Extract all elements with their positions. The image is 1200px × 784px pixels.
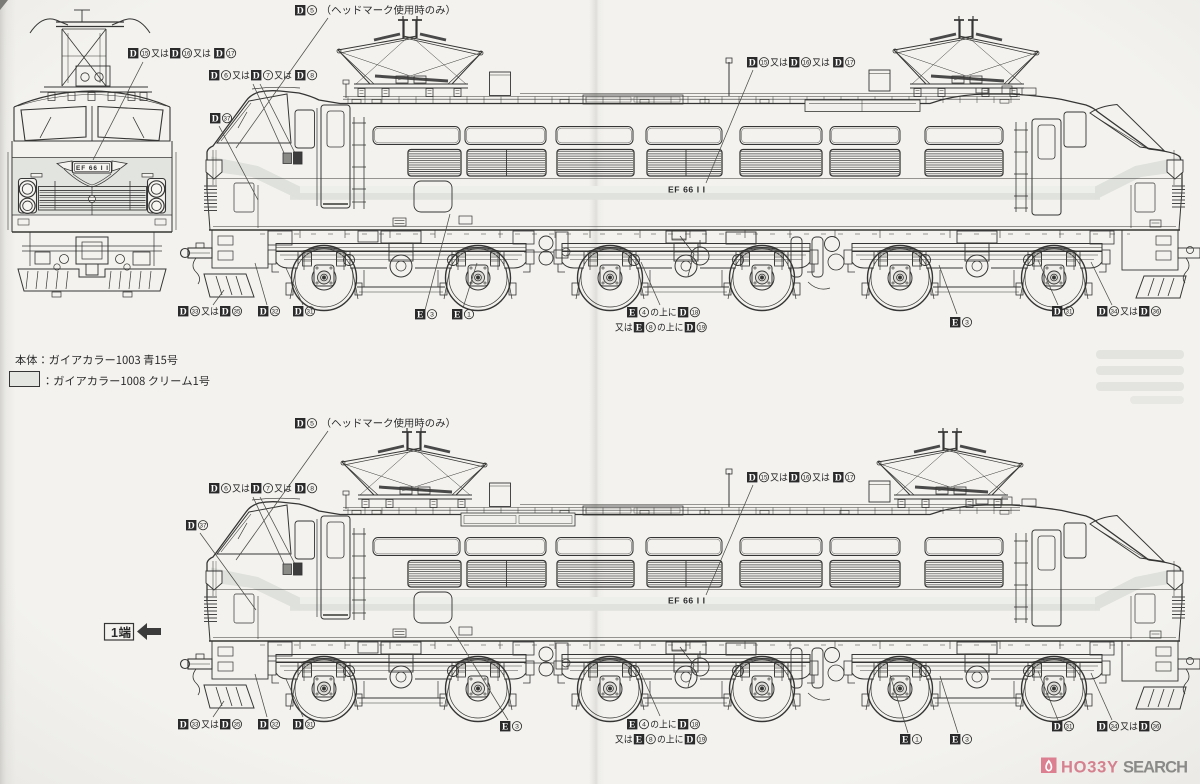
svg-text:D: D <box>680 719 687 730</box>
svg-text:31: 31 <box>307 308 314 315</box>
svg-text:16: 16 <box>184 50 191 57</box>
svg-text:32: 32 <box>272 721 279 728</box>
svg-text:D: D <box>1054 306 1061 317</box>
svg-text:D: D <box>835 57 842 68</box>
svg-text:3: 3 <box>430 312 434 319</box>
svg-text:D: D <box>297 70 304 81</box>
svg-text:E: E <box>629 719 635 730</box>
svg-text:33: 33 <box>192 308 199 315</box>
svg-text:18: 18 <box>691 721 698 728</box>
svg-text:16: 16 <box>803 474 810 481</box>
svg-text:D: D <box>297 418 304 429</box>
svg-text:D: D <box>297 5 304 16</box>
svg-text:3: 3 <box>965 320 969 327</box>
svg-text:D: D <box>253 70 260 81</box>
svg-text:31: 31 <box>1066 723 1073 730</box>
svg-text:D: D <box>835 472 842 483</box>
svg-text:19: 19 <box>698 324 705 331</box>
svg-text:D: D <box>1099 306 1106 317</box>
svg-text:E: E <box>629 307 635 318</box>
svg-text:D: D <box>791 57 798 68</box>
svg-text:E: E <box>454 309 460 320</box>
svg-text:34: 34 <box>1111 723 1118 730</box>
svg-text:D: D <box>222 719 229 730</box>
svg-text:37: 37 <box>200 522 207 529</box>
svg-text:D: D <box>216 48 223 59</box>
svg-text:4: 4 <box>642 722 646 729</box>
svg-text:37: 37 <box>224 115 231 122</box>
svg-text:D: D <box>1054 721 1061 732</box>
svg-text:SEARCH: SEARCH <box>1123 759 1188 777</box>
svg-text:E: E <box>636 322 642 333</box>
svg-text:33: 33 <box>192 721 199 728</box>
svg-text:5: 5 <box>310 8 314 15</box>
svg-text:D: D <box>686 322 693 333</box>
svg-text:8: 8 <box>649 325 653 332</box>
svg-text:HO33Y: HO33Y <box>1061 759 1118 777</box>
svg-text:D: D <box>130 48 137 59</box>
svg-text:34: 34 <box>1111 308 1118 315</box>
svg-text:D: D <box>260 719 267 730</box>
svg-text:15: 15 <box>761 59 768 66</box>
svg-text:D: D <box>212 113 219 124</box>
svg-text:7: 7 <box>266 73 270 80</box>
svg-text:D: D <box>188 520 195 531</box>
svg-text:36: 36 <box>1153 723 1160 730</box>
svg-text:6: 6 <box>224 73 228 80</box>
svg-text:3: 3 <box>965 737 969 744</box>
svg-text:D: D <box>680 307 687 318</box>
svg-text:1: 1 <box>467 312 471 319</box>
svg-text:32: 32 <box>272 308 279 315</box>
svg-text:5: 5 <box>310 421 314 428</box>
svg-text:1: 1 <box>111 626 118 640</box>
svg-text:8: 8 <box>310 486 314 493</box>
svg-text:D: D <box>1141 306 1148 317</box>
svg-text:D: D <box>1141 721 1148 732</box>
svg-text:17: 17 <box>847 474 854 481</box>
svg-text:6: 6 <box>224 486 228 493</box>
svg-text:D: D <box>1099 721 1106 732</box>
svg-text:D: D <box>749 472 756 483</box>
svg-text:D: D <box>295 719 302 730</box>
svg-text:4: 4 <box>642 310 646 317</box>
svg-text:D: D <box>253 483 260 494</box>
svg-text:3: 3 <box>515 724 519 731</box>
svg-text:16: 16 <box>803 59 810 66</box>
svg-text:E: E <box>902 734 908 745</box>
svg-text:D: D <box>791 472 798 483</box>
svg-text:D: D <box>260 306 267 317</box>
svg-text:15: 15 <box>761 474 768 481</box>
svg-text:8: 8 <box>310 73 314 80</box>
svg-text:36: 36 <box>1153 308 1160 315</box>
svg-text:15: 15 <box>142 50 149 57</box>
svg-text:19: 19 <box>698 736 705 743</box>
svg-text:E: E <box>417 309 423 320</box>
svg-text:17: 17 <box>847 59 854 66</box>
svg-text:EF 66 I I: EF 66 I I <box>76 165 108 172</box>
svg-text:D: D <box>172 48 179 59</box>
svg-text:D: D <box>297 483 304 494</box>
svg-text:35: 35 <box>234 308 241 315</box>
svg-text:1: 1 <box>915 737 919 744</box>
svg-text:D: D <box>180 719 187 730</box>
svg-text:E: E <box>636 734 642 745</box>
svg-text:18: 18 <box>691 309 698 316</box>
svg-text:7: 7 <box>266 486 270 493</box>
svg-text:35: 35 <box>234 721 241 728</box>
svg-text:31: 31 <box>1066 308 1073 315</box>
svg-text:D: D <box>211 70 218 81</box>
svg-text:8: 8 <box>649 737 653 744</box>
svg-text:D: D <box>749 57 756 68</box>
svg-text:D: D <box>211 483 218 494</box>
svg-text:17: 17 <box>228 50 235 57</box>
svg-text:D: D <box>222 306 229 317</box>
svg-text:E: E <box>952 734 958 745</box>
svg-text:D: D <box>686 734 693 745</box>
svg-text:D: D <box>295 306 302 317</box>
svg-text:E: E <box>952 317 958 328</box>
svg-text:31: 31 <box>307 721 314 728</box>
svg-text:E: E <box>502 721 508 732</box>
svg-text:D: D <box>180 306 187 317</box>
